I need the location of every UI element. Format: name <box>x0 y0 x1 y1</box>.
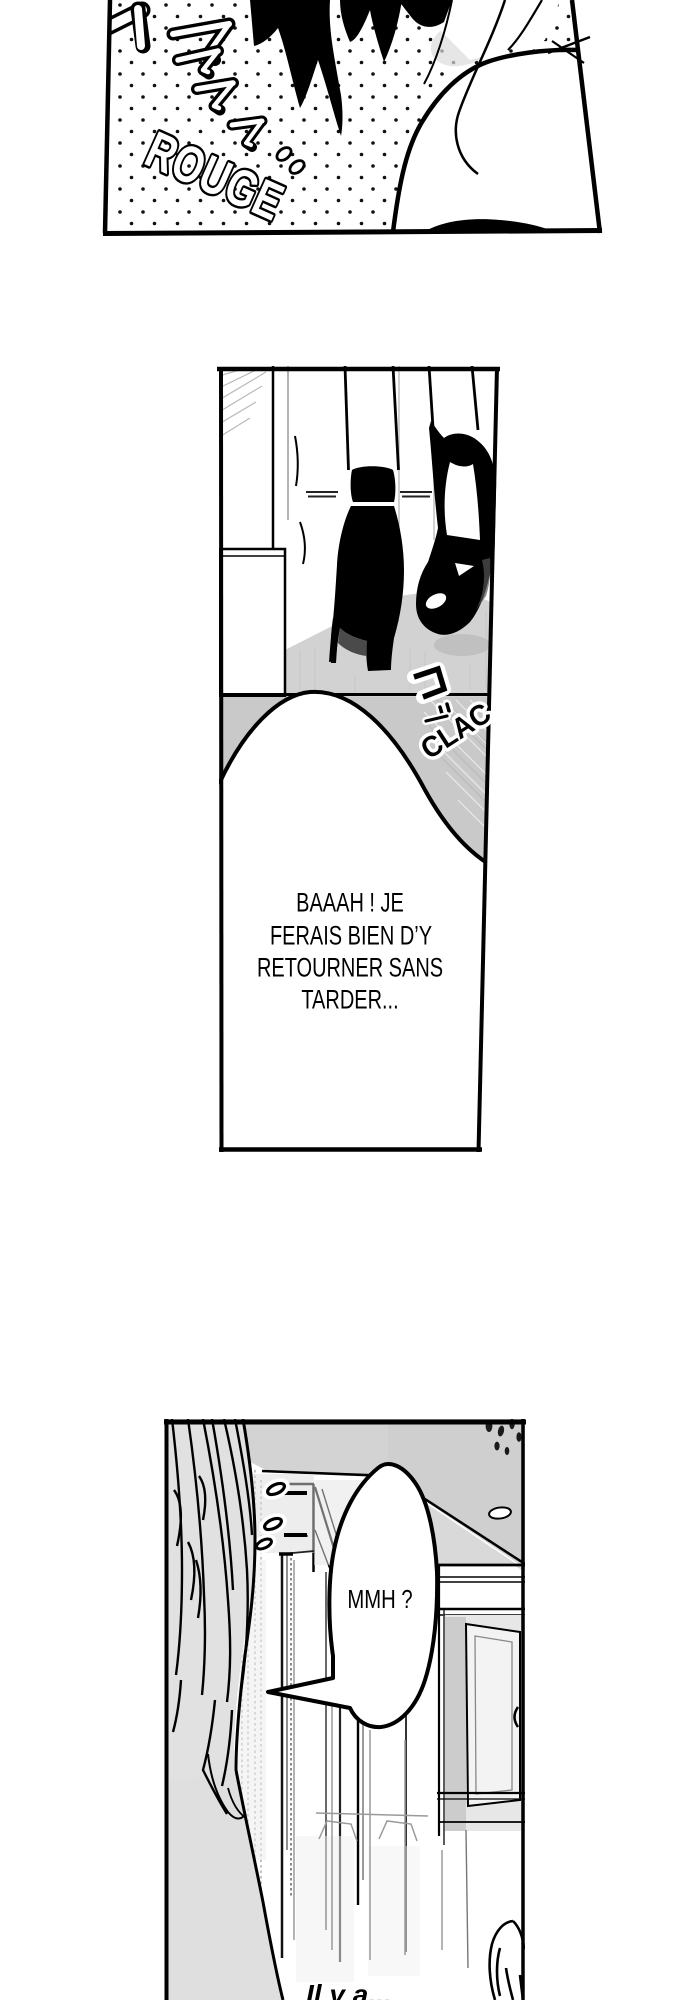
svg-text:RETOURNER SANS: RETOURNER SANS <box>257 953 443 984</box>
svg-text:BAAAH ! JE: BAAAH ! JE <box>296 888 404 919</box>
svg-text:FERAIS BIEN D’Y: FERAIS BIEN D’Y <box>270 921 432 952</box>
svg-text:MMH ?: MMH ? <box>347 1585 412 1614</box>
svg-text:Il y a...: Il y a... <box>306 1979 392 2000</box>
svg-text:TARDER...: TARDER... <box>301 985 398 1016</box>
